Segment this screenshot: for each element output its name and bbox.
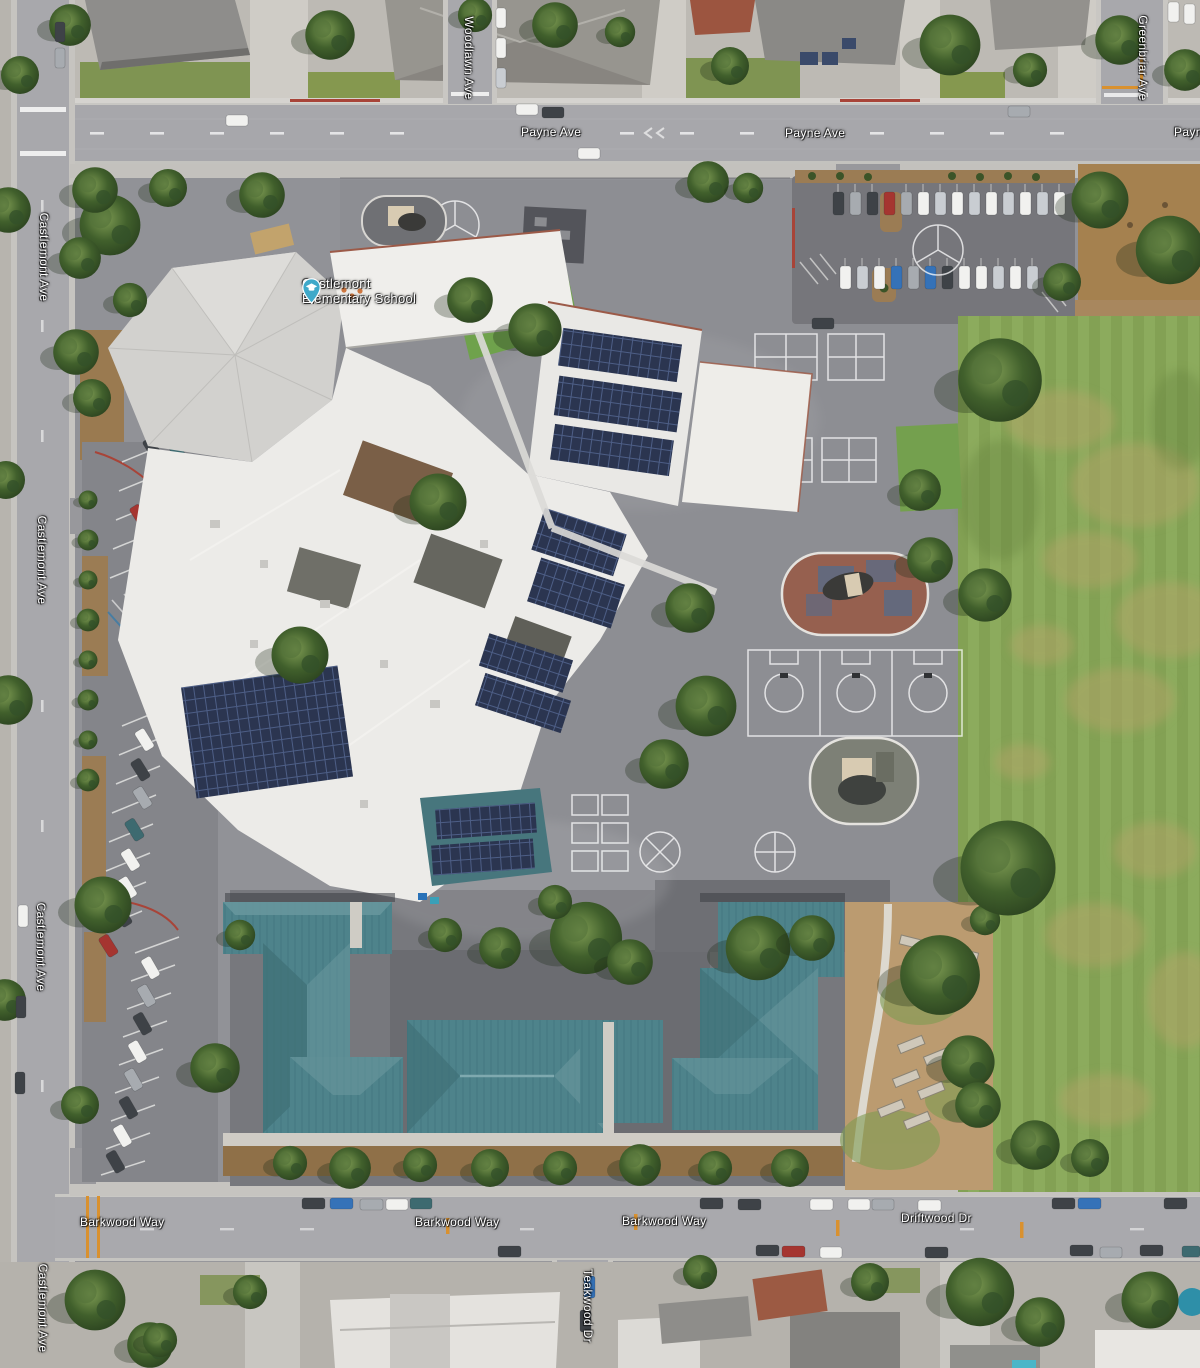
barkwood-way-road <box>55 1194 1200 1261</box>
north-residential-block <box>0 0 1200 104</box>
map-canvas <box>0 0 1200 1368</box>
play-structure-area-2 <box>810 738 918 824</box>
south-residential-block <box>0 1255 1200 1368</box>
north-parking-lot <box>792 164 1075 329</box>
school-pin-icon[interactable] <box>302 278 321 304</box>
play-structure-area-3 <box>362 196 446 246</box>
poi-label-school[interactable]: Castlemont Elementary School <box>302 276 416 307</box>
satellite-map[interactable]: Castlemont Elementary School Payne Ave P… <box>0 0 1200 1368</box>
